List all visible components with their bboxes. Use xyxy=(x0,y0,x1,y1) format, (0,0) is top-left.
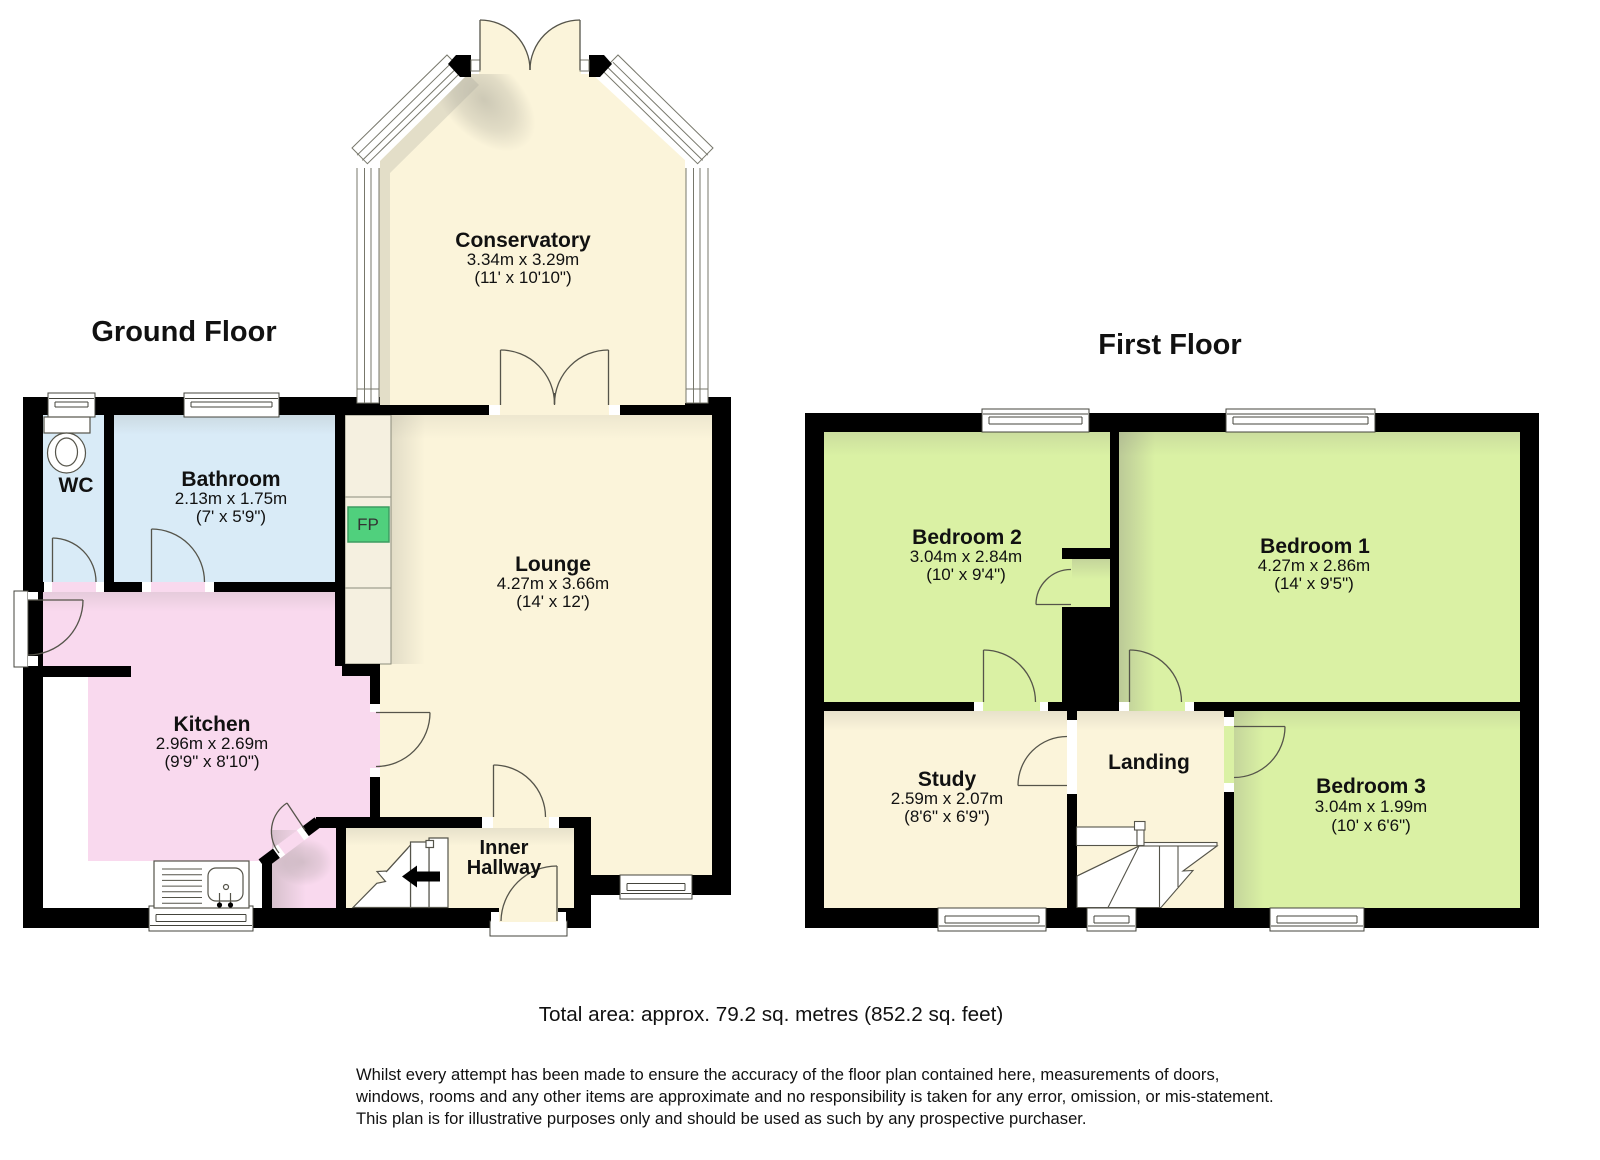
svg-text:Bedroom 1: Bedroom 1 xyxy=(1260,535,1370,558)
svg-text:Kitchen: Kitchen xyxy=(173,713,250,736)
svg-text:Bedroom 2: Bedroom 2 xyxy=(912,526,1022,549)
svg-text:(7' x 5'9"): (7' x 5'9") xyxy=(196,507,266,526)
svg-text:Inner: Inner xyxy=(480,837,529,859)
svg-text:Whilst every attempt has been: Whilst every attempt has been made to en… xyxy=(356,1065,1219,1084)
svg-text:Landing: Landing xyxy=(1108,751,1190,774)
svg-text:Lounge: Lounge xyxy=(515,553,591,576)
svg-text:Ground Floor: Ground Floor xyxy=(91,316,276,348)
svg-text:3.04m x 1.99m: 3.04m x 1.99m xyxy=(1315,797,1427,816)
svg-text:(11' x 10'10"): (11' x 10'10") xyxy=(474,268,571,287)
svg-text:First Floor: First Floor xyxy=(1098,329,1241,361)
svg-text:WC: WC xyxy=(59,474,94,497)
svg-text:Conservatory: Conservatory xyxy=(455,229,591,252)
svg-text:(8'6" x 6'9"): (8'6" x 6'9") xyxy=(904,807,990,826)
svg-text:Hallway: Hallway xyxy=(467,857,542,879)
svg-text:2.96m x 2.69m: 2.96m x 2.69m xyxy=(156,734,268,753)
svg-text:(14' x 9'5"): (14' x 9'5") xyxy=(1274,574,1354,593)
svg-text:(10' x 6'6"): (10' x 6'6") xyxy=(1331,816,1411,835)
svg-text:windows, rooms and any other i: windows, rooms and any other items are a… xyxy=(355,1087,1274,1106)
svg-text:FP: FP xyxy=(357,515,379,534)
svg-text:(14' x 12'): (14' x 12') xyxy=(516,592,590,611)
svg-text:Bathroom: Bathroom xyxy=(181,468,280,491)
svg-text:Study: Study xyxy=(918,768,977,791)
svg-text:3.34m x 3.29m: 3.34m x 3.29m xyxy=(467,250,579,269)
svg-text:2.13m x 1.75m: 2.13m x 1.75m xyxy=(175,489,287,508)
svg-text:4.27m x 2.86m: 4.27m x 2.86m xyxy=(1258,556,1370,575)
svg-text:This plan is for illustrative: This plan is for illustrative purposes o… xyxy=(356,1109,1087,1128)
svg-text:4.27m x 3.66m: 4.27m x 3.66m xyxy=(497,574,609,593)
svg-text:3.04m x 2.84m: 3.04m x 2.84m xyxy=(910,547,1022,566)
svg-text:Total area: approx. 79.2 sq. m: Total area: approx. 79.2 sq. metres (852… xyxy=(539,1003,1004,1026)
svg-text:(9'9" x 8'10"): (9'9" x 8'10") xyxy=(164,752,259,771)
svg-text:Bedroom 3: Bedroom 3 xyxy=(1316,775,1426,798)
svg-text:(10' x 9'4"): (10' x 9'4") xyxy=(926,565,1006,584)
svg-text:2.59m x 2.07m: 2.59m x 2.07m xyxy=(891,789,1003,808)
